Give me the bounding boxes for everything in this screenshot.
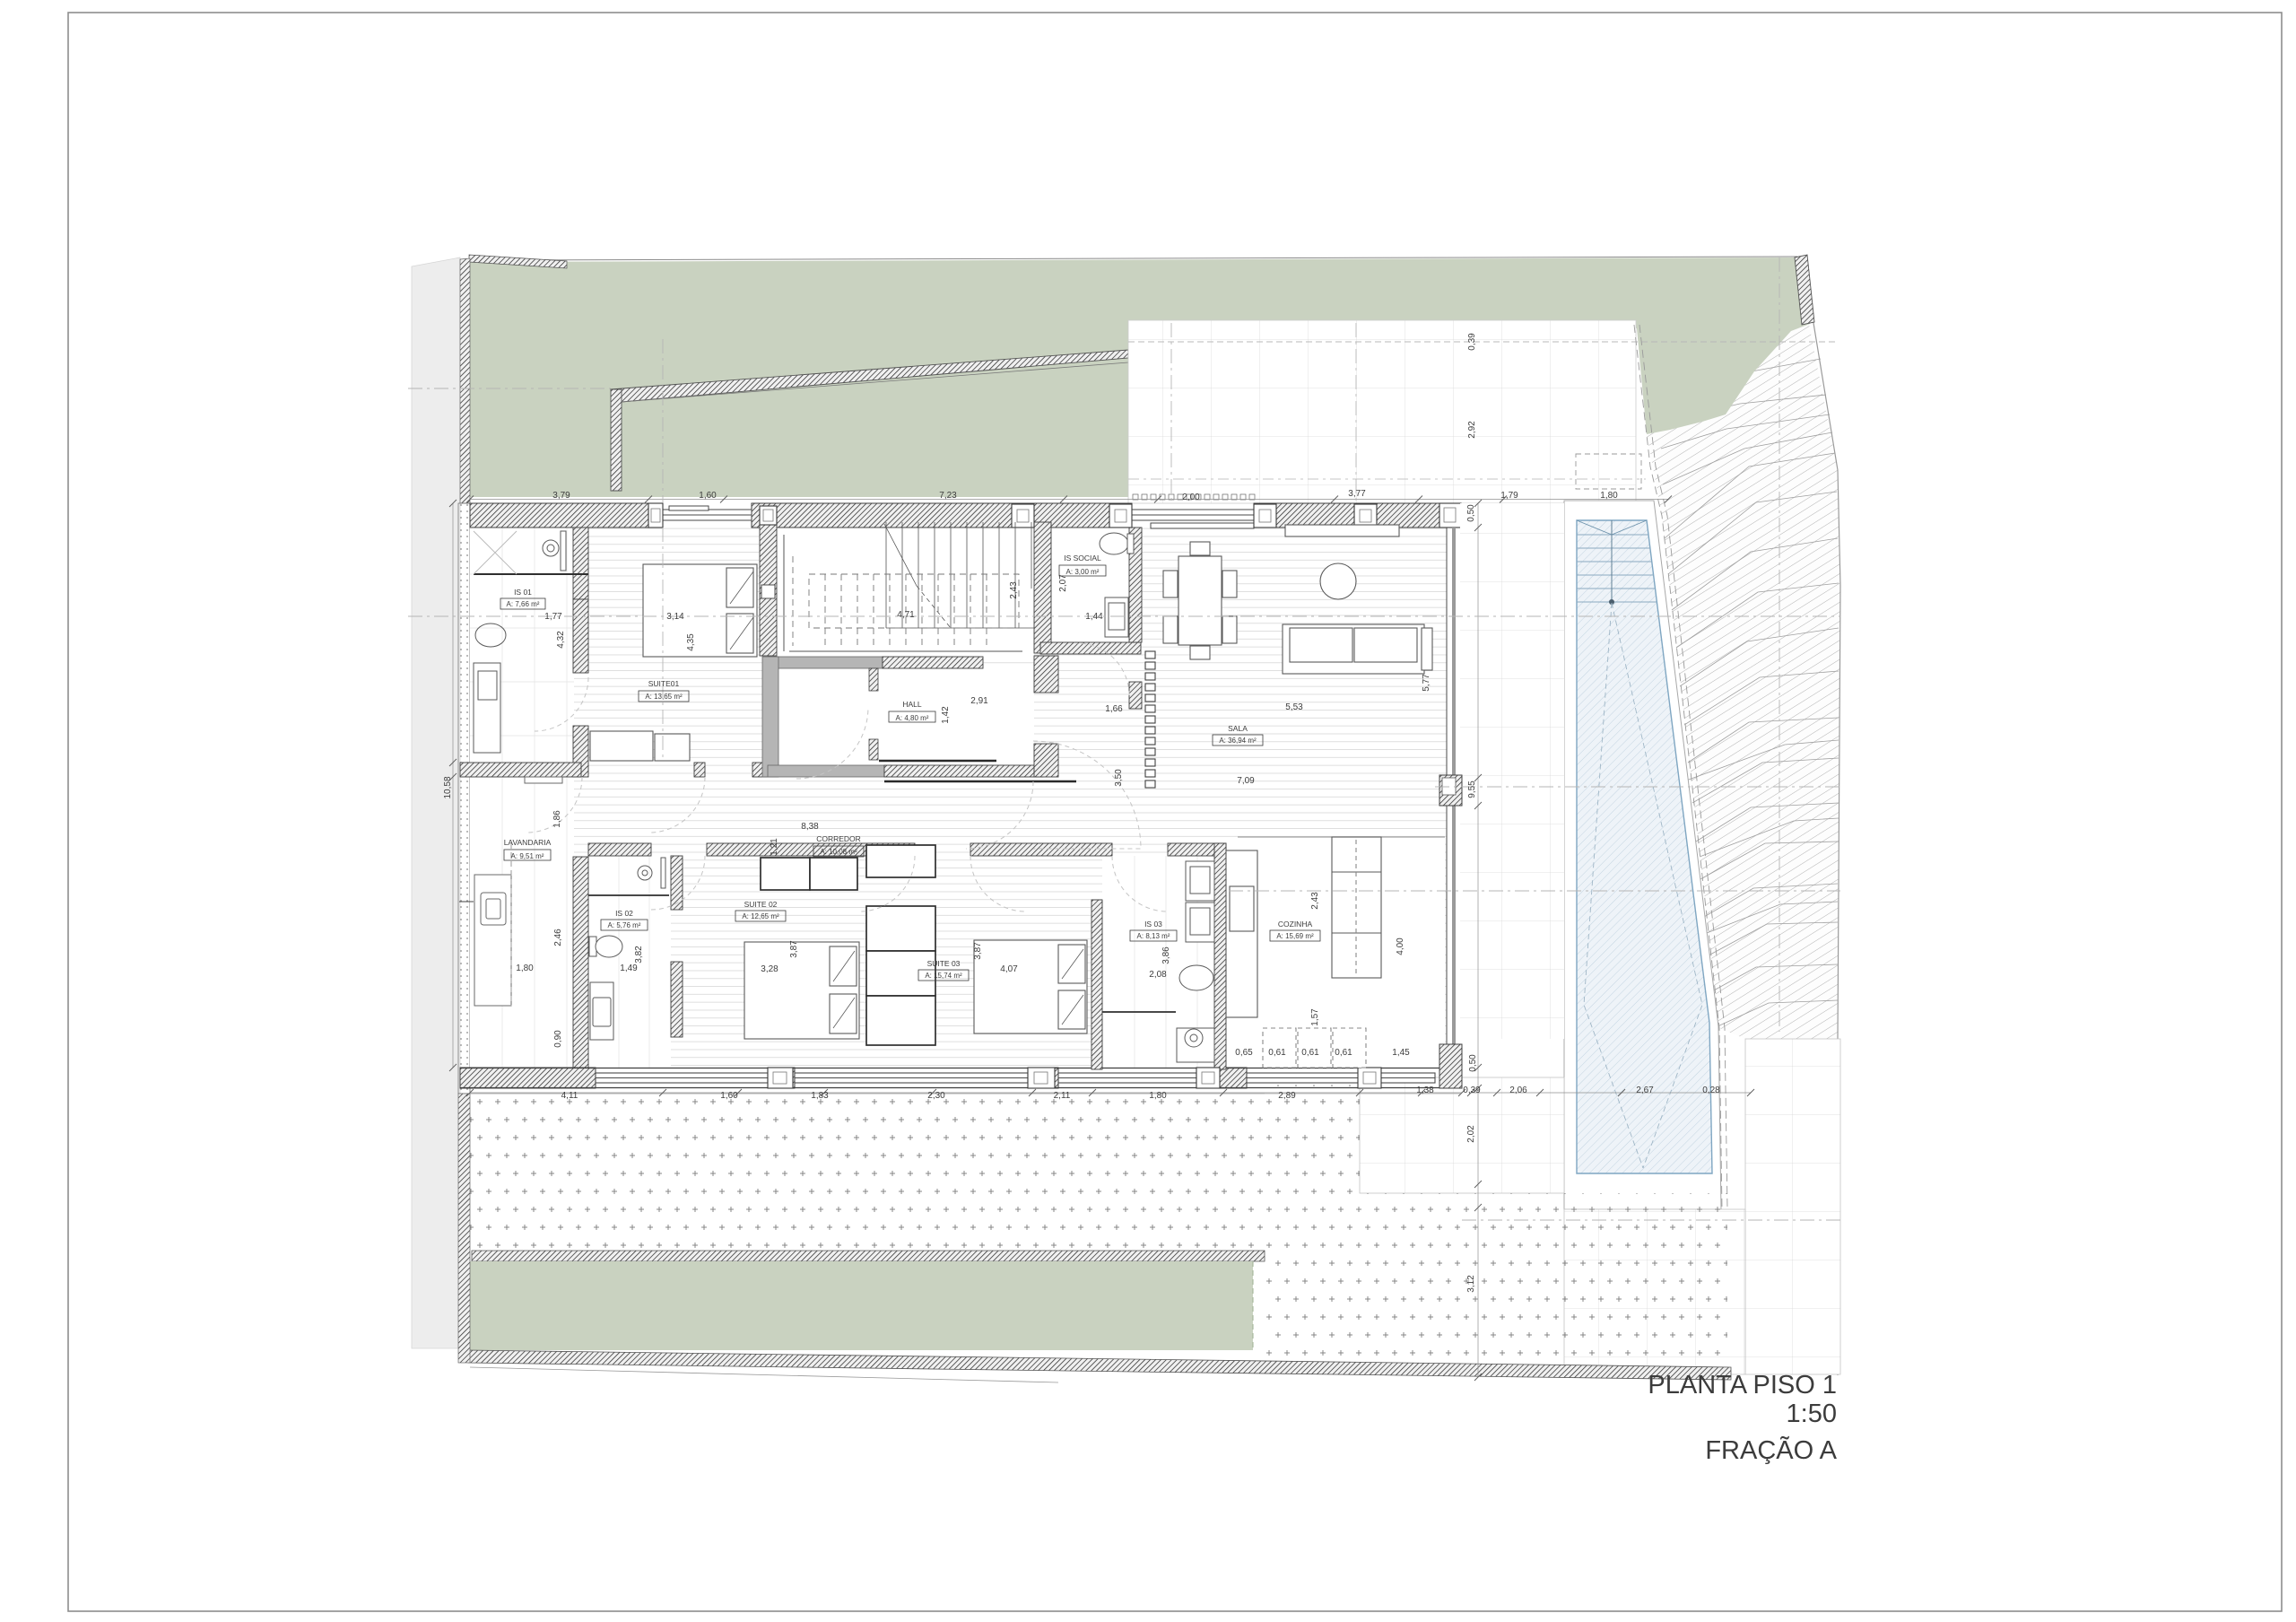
svg-text:1,60: 1,60 xyxy=(699,491,717,501)
svg-text:3,79: 3,79 xyxy=(552,491,570,501)
svg-text:SALA: SALA xyxy=(1228,724,1248,733)
svg-text:0,90: 0,90 xyxy=(553,1030,563,1048)
svg-text:4,32: 4,32 xyxy=(556,631,566,649)
svg-text:2,00: 2,00 xyxy=(1182,493,1200,502)
svg-text:0,61: 0,61 xyxy=(1268,1048,1286,1058)
svg-text:IS 03: IS 03 xyxy=(1144,920,1162,929)
svg-text:1,79: 1,79 xyxy=(1500,491,1518,501)
svg-text:8,38: 8,38 xyxy=(801,822,819,832)
svg-text:0,50: 0,50 xyxy=(1466,504,1476,522)
svg-text:2,67: 2,67 xyxy=(1636,1086,1654,1095)
svg-text:1,21: 1,21 xyxy=(770,838,779,856)
svg-text:IS 02: IS 02 xyxy=(615,909,633,918)
svg-text:A: 12,65 m²: A: 12,65 m² xyxy=(742,912,779,920)
svg-text:7,23: 7,23 xyxy=(939,491,957,501)
svg-text:1,44: 1,44 xyxy=(1085,612,1103,622)
svg-text:1,80: 1,80 xyxy=(516,964,534,973)
svg-text:A: 36,94 m²: A: 36,94 m² xyxy=(1219,737,1257,745)
svg-text:A: 7,66 m²: A: 7,66 m² xyxy=(507,600,540,608)
svg-text:SUITE 03: SUITE 03 xyxy=(927,959,961,968)
svg-text:3,12: 3,12 xyxy=(1466,1275,1476,1293)
svg-text:2,08: 2,08 xyxy=(1149,970,1167,980)
svg-text:1,80: 1,80 xyxy=(1600,491,1618,501)
svg-text:1:50: 1:50 xyxy=(1787,1400,1837,1428)
svg-text:2,02: 2,02 xyxy=(1466,1125,1476,1143)
svg-text:2,43: 2,43 xyxy=(1310,892,1320,910)
svg-text:4,35: 4,35 xyxy=(686,633,696,651)
svg-text:IS 01: IS 01 xyxy=(514,588,532,597)
svg-text:0,65: 0,65 xyxy=(1235,1048,1253,1058)
svg-text:1,60: 1,60 xyxy=(720,1091,738,1101)
svg-text:A: 9,51 m²: A: 9,51 m² xyxy=(511,852,544,860)
svg-text:HALL: HALL xyxy=(902,700,922,709)
svg-text:4,11: 4,11 xyxy=(561,1091,578,1101)
svg-text:1,86: 1,86 xyxy=(552,810,562,828)
svg-text:4,00: 4,00 xyxy=(1396,937,1405,955)
svg-text:3,87: 3,87 xyxy=(789,940,799,958)
svg-text:1,38: 1,38 xyxy=(1416,1086,1434,1095)
svg-text:IS SOCIAL: IS SOCIAL xyxy=(1064,554,1101,562)
svg-text:2,07: 2,07 xyxy=(1058,574,1068,592)
svg-text:0,61: 0,61 xyxy=(1335,1048,1352,1058)
svg-text:A: 15,74 m²: A: 15,74 m² xyxy=(925,972,962,980)
svg-text:0,39: 0,39 xyxy=(1467,333,1477,351)
svg-text:0,61: 0,61 xyxy=(1301,1048,1319,1058)
svg-text:1,42: 1,42 xyxy=(941,706,951,724)
svg-text:1,45: 1,45 xyxy=(1392,1048,1410,1058)
svg-text:2,11: 2,11 xyxy=(1054,1091,1071,1101)
svg-text:1,66: 1,66 xyxy=(1105,704,1123,714)
svg-text:3,50: 3,50 xyxy=(1114,769,1124,787)
svg-text:0,39: 0,39 xyxy=(1463,1086,1481,1095)
svg-text:COZINHA: COZINHA xyxy=(1278,920,1313,929)
svg-text:2,06: 2,06 xyxy=(1509,1086,1527,1095)
svg-text:9,55: 9,55 xyxy=(1467,780,1477,798)
svg-text:3,28: 3,28 xyxy=(761,964,778,974)
svg-text:3,77: 3,77 xyxy=(1348,489,1366,499)
svg-text:A: 15,69 m²: A: 15,69 m² xyxy=(1276,932,1314,940)
svg-text:FRAÇÃO A: FRAÇÃO A xyxy=(1705,1435,1837,1465)
svg-text:4,07: 4,07 xyxy=(1000,964,1018,974)
svg-text:SUITE 02: SUITE 02 xyxy=(744,900,778,909)
svg-text:2,30: 2,30 xyxy=(927,1091,945,1101)
svg-text:4,71: 4,71 xyxy=(897,610,915,620)
svg-text:1,83: 1,83 xyxy=(811,1091,829,1101)
svg-text:2,92: 2,92 xyxy=(1467,421,1477,439)
svg-text:1,49: 1,49 xyxy=(620,964,638,973)
svg-text:1,57: 1,57 xyxy=(1310,1008,1320,1026)
svg-text:3,87: 3,87 xyxy=(973,942,983,960)
svg-text:7,09: 7,09 xyxy=(1237,776,1255,786)
svg-text:A: 8,13 m²: A: 8,13 m² xyxy=(1137,932,1170,940)
svg-text:CORREDOR: CORREDOR xyxy=(816,834,861,843)
svg-text:PLANTA PISO 1: PLANTA PISO 1 xyxy=(1648,1371,1837,1400)
svg-text:3,86: 3,86 xyxy=(1161,946,1171,964)
svg-text:A: 3,00 m²: A: 3,00 m² xyxy=(1066,568,1100,576)
svg-text:1,80: 1,80 xyxy=(1149,1091,1167,1101)
svg-text:3,82: 3,82 xyxy=(634,946,644,964)
svg-text:5,77: 5,77 xyxy=(1422,674,1431,692)
svg-text:10,58: 10,58 xyxy=(443,776,453,798)
svg-text:2,46: 2,46 xyxy=(553,929,563,946)
svg-text:2,43: 2,43 xyxy=(1009,581,1019,599)
svg-text:SUITE01: SUITE01 xyxy=(648,679,680,688)
svg-text:2,91: 2,91 xyxy=(970,696,988,706)
svg-text:3,14: 3,14 xyxy=(666,612,684,622)
svg-text:A: 4,80 m²: A: 4,80 m² xyxy=(896,714,929,722)
svg-text:0,50: 0,50 xyxy=(1468,1054,1478,1072)
svg-text:A: 5,76 m²: A: 5,76 m² xyxy=(608,921,641,929)
svg-text:0,28: 0,28 xyxy=(1702,1086,1720,1095)
svg-text:5,53: 5,53 xyxy=(1285,702,1303,712)
svg-text:1,77: 1,77 xyxy=(544,612,562,622)
svg-text:2,89: 2,89 xyxy=(1278,1091,1296,1101)
svg-text:LAVANDARIA: LAVANDARIA xyxy=(504,838,552,847)
svg-text:A: 10,08 m²: A: 10,08 m² xyxy=(820,848,857,856)
svg-text:A: 13,65 m²: A: 13,65 m² xyxy=(645,693,683,701)
